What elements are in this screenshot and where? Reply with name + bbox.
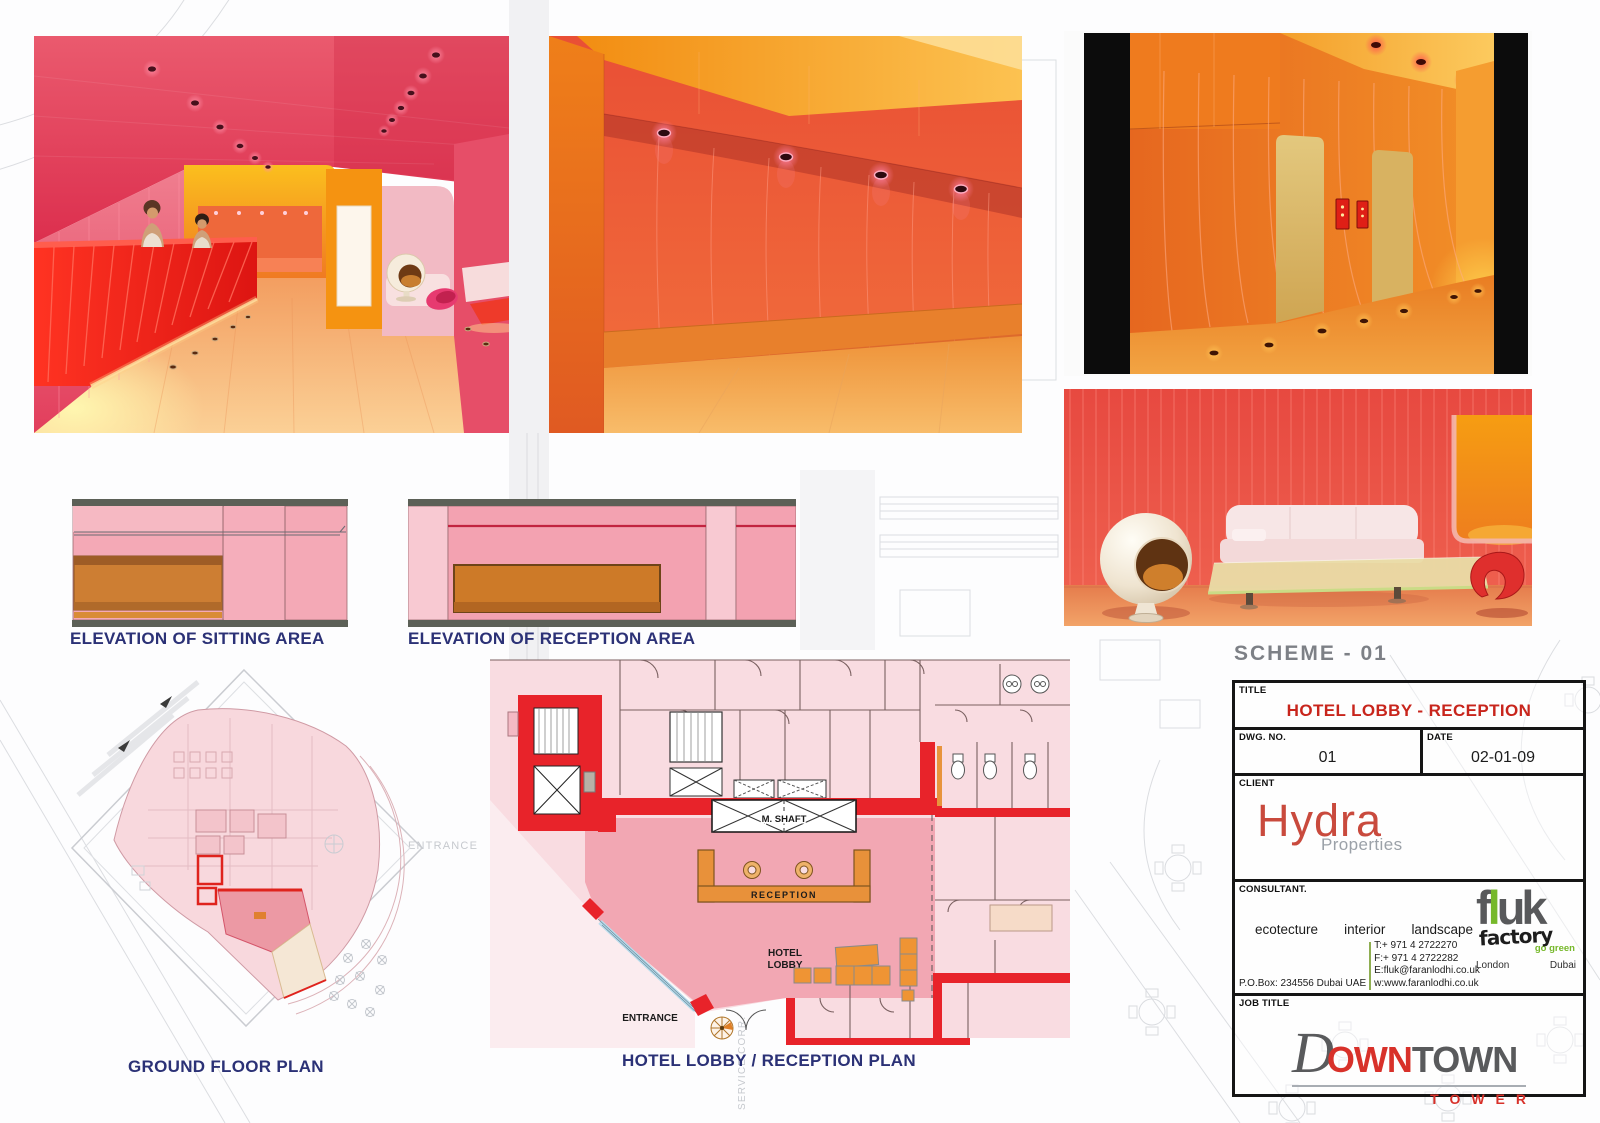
contact-divider xyxy=(1369,942,1371,990)
pobox-text: P.O.Box: 234556 Dubai UAE xyxy=(1239,978,1366,990)
reception-desk-block xyxy=(454,565,660,612)
caption-ground-floor-plan: GROUND FLOOR PLAN xyxy=(128,1057,324,1077)
black-border-left xyxy=(1084,33,1130,374)
client-field-label: CLIENT xyxy=(1239,778,1275,789)
reception-label: RECEPTION xyxy=(751,890,817,900)
downtown-town: TOWN xyxy=(1412,1039,1517,1080)
fax-line: F:+ 971 4 2722282 xyxy=(1374,953,1480,966)
fluk-factory-logo: fluk factory go green London Dubai xyxy=(1474,888,1578,971)
client-row: CLIENT Hydra Properties xyxy=(1235,776,1583,882)
entrance-label: ENTRANCE xyxy=(622,1013,678,1024)
elevator-core xyxy=(508,695,602,831)
dwg-number: 01 xyxy=(1235,749,1420,767)
ceiling-band xyxy=(72,499,348,506)
job-field-label: JOB TITLE xyxy=(1239,998,1289,1009)
render-sitting-area xyxy=(1064,389,1532,626)
hydra-logo: Hydra Properties xyxy=(1257,798,1402,855)
job-title-row: JOB TITLE DOWNTOWN TOWER xyxy=(1235,996,1583,1094)
downtown-own: OWN xyxy=(1327,1039,1412,1080)
ceiling-band xyxy=(408,499,796,506)
drawing-title: HOTEL LOBBY - RECEPTION xyxy=(1235,701,1583,721)
caption-lobby-plan: HOTEL LOBBY / RECEPTION PLAN xyxy=(622,1051,916,1071)
date-field-label: DATE xyxy=(1427,732,1453,743)
caption-elevation-sitting: ELEVATION OF SITTING AREA xyxy=(70,629,325,649)
m-shaft-box: M. SHAFT xyxy=(712,800,856,832)
spiral-stair xyxy=(711,1017,733,1039)
consultant-contact: P.O.Box: 234556 Dubai UAE T:+ 971 4 2722… xyxy=(1239,940,1480,990)
discipline-interior: interior xyxy=(1344,922,1385,937)
date-cell: DATE 02-01-09 xyxy=(1423,730,1583,773)
black-border-right xyxy=(1494,33,1528,374)
title-row: TITLE HOTEL LOBBY - RECEPTION xyxy=(1235,683,1583,730)
discipline-ecotecture: ecotecture xyxy=(1255,922,1318,937)
elevator-door-1 xyxy=(1276,135,1324,323)
web-line: w:www.faranlodhi.co.uk xyxy=(1374,978,1480,991)
caption-elevation-reception: ELEVATION OF RECEPTION AREA xyxy=(408,629,695,649)
hotel-label: HOTEL xyxy=(768,948,802,959)
title-block: TITLE HOTEL LOBBY - RECEPTION DWG. NO. 0… xyxy=(1232,680,1586,1097)
orange-opening xyxy=(1454,415,1532,541)
render-lobby-reception xyxy=(34,36,509,433)
render-reception-niche xyxy=(549,36,1022,433)
consultant-disciplines: ecotecture interior landscape xyxy=(1255,922,1473,937)
elevation-reception-area-drawing xyxy=(408,499,796,627)
city-london: London xyxy=(1476,960,1509,971)
downtown-tower-logo: DOWNTOWN TOWER xyxy=(1292,1024,1526,1107)
building-footprint xyxy=(114,709,380,1000)
city-dubai: Dubai xyxy=(1550,960,1576,971)
scheme-heading: SCHEME - 01 xyxy=(1234,642,1388,666)
consultant-field-label: CONSULTANT. xyxy=(1239,884,1307,895)
hydra-tagline: Properties xyxy=(1321,835,1402,855)
sitting-bench-block xyxy=(74,556,222,618)
m-shaft-label: M. SHAFT xyxy=(762,814,807,825)
date-value: 02-01-09 xyxy=(1423,749,1583,767)
dwg-cell: DWG. NO. 01 xyxy=(1235,730,1423,773)
logo-rule xyxy=(1292,1085,1526,1087)
elevation-sitting-area-drawing xyxy=(72,499,348,627)
dwg-field-label: DWG. NO. xyxy=(1239,732,1286,743)
title-field-label: TITLE xyxy=(1239,685,1266,696)
ground-floor-plan-drawing xyxy=(48,660,440,1052)
floor-band xyxy=(408,620,796,627)
lobby-reception-plan-drawing: M. SHAFT xyxy=(490,650,1070,1048)
meta-row: DWG. NO. 01 DATE 02-01-09 xyxy=(1235,730,1583,776)
consultant-row: CONSULTANT. ecotecture interior landscap… xyxy=(1235,882,1583,996)
discipline-landscape: landscape xyxy=(1411,922,1473,937)
presentation-board: ENTRANCE SERVICE CORR. xyxy=(0,0,1600,1123)
email-line: E:fluk@faranlodhi.co.uk xyxy=(1374,965,1480,978)
tower-wordmark: TOWER xyxy=(1292,1091,1537,1107)
render-elevator-lobby xyxy=(1064,31,1532,376)
floor-band xyxy=(72,620,348,627)
elevator-door-2 xyxy=(1372,150,1413,303)
phone-line: T:+ 971 4 2722270 xyxy=(1374,940,1480,953)
